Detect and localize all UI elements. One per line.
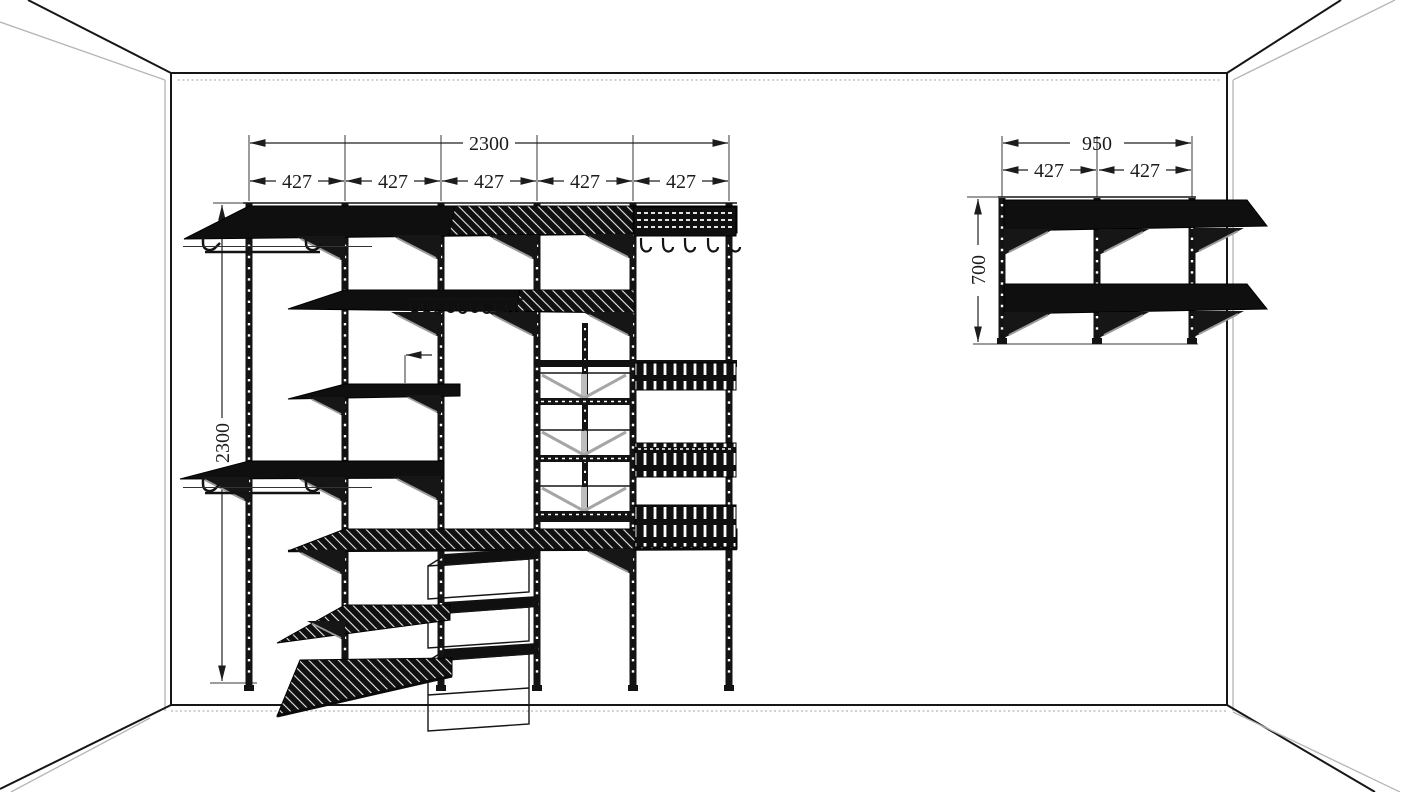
shelf-bracket [391,235,441,261]
ceiling-corner-right-line [1227,0,1341,73]
leader-callout-arrow [405,355,432,383]
technical-drawing-canvas: 2300 427 427 427 427 427 2300 [0,0,1417,792]
basket-column [635,363,736,477]
floor-corner-left-line [0,705,171,789]
shelf-bracket [583,312,633,338]
shelf-bracket [1099,229,1149,255]
shelf-bracket [1004,229,1054,255]
dim-label-left-segment-5: 427 [666,171,696,193]
floor-corner-right-gray-line [1233,712,1400,792]
dim-label-left-segment-2: 427 [378,171,408,193]
shelf-bracket [1004,312,1054,338]
ceiling-corner-left-gray-line [0,22,165,80]
shelf-bracket [487,235,537,261]
shelf-bracket [307,397,345,417]
dim-label-right-segment-1: 427 [1034,160,1064,182]
top-shelf [184,206,737,262]
shelf-bracket [583,549,633,575]
dim-label-left-segment-1: 427 [282,171,312,193]
flat-shoe-shelf [277,605,450,643]
dim-label-left-segment-4: 427 [570,171,600,193]
tall-wire-basket [635,505,736,547]
room-outline [0,0,1400,792]
shelf-bracket [1194,228,1244,254]
dim-label-left-total-height: 2300 [212,423,234,463]
shelf-bracket [295,550,345,576]
shelf-bracket [295,477,345,503]
dim-total-height: 2300 [212,205,234,681]
ceiling-corner-right-gray-line [1233,0,1395,80]
hook-row [641,238,740,251]
dim-label-right-total-height: 700 [968,255,990,285]
dim-label-right-total-width: 950 [1082,133,1112,155]
dim-label-left-segment-3: 427 [474,171,504,193]
top-wire-basket [634,207,736,236]
third-shelf [288,384,460,417]
shelf-bracket [295,236,345,262]
angled-shoe-shelf [277,658,452,716]
shelf-bracket [391,476,441,502]
ceiling-corner-left-line [28,0,171,73]
wire-basket [635,363,736,390]
shelf-bracket [1194,311,1244,337]
glide-rack [538,430,630,462]
closet-elevation-drawing: 2300 427 427 427 427 427 2300 [0,0,1417,792]
tower-bottom-rail [534,516,634,522]
dim-total-width-right: 950 [1003,133,1191,155]
shelf-bracket [391,312,441,338]
glide-rack [538,373,630,405]
wire-basket [635,443,736,477]
middle-shelf [180,461,444,503]
shelf-bracket [487,312,537,338]
glide-rack [538,486,630,518]
shelf-bracket [403,395,441,415]
dim-label-left-total-width: 2300 [469,133,509,155]
dim-total-width: 2300 [250,133,728,155]
left-shelving-unit [180,203,740,731]
wall-standard [532,203,542,691]
shelf-bracket [1099,312,1149,338]
floor-corner-left-gray-line [11,718,150,792]
dim-total-height-right: 700 [968,199,990,342]
dim-segments-row: 427 427 427 427 427 [250,171,728,193]
dim-label-right-segment-2: 427 [1130,160,1160,182]
wall-standard [244,203,254,691]
floor-corner-right-line [1227,705,1375,792]
rod-holder [203,238,220,250]
shelf-bracket [583,234,633,260]
